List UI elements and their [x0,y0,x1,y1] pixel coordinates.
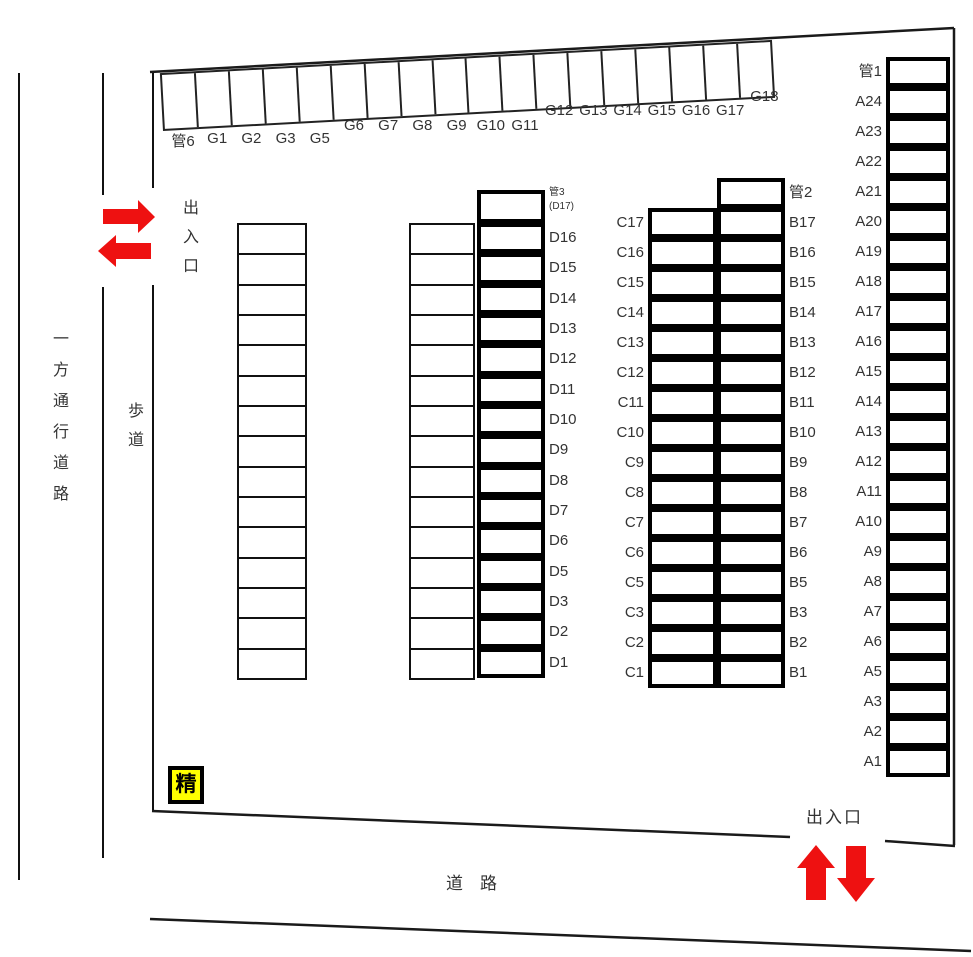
stall-label-a: A3 [818,687,882,717]
parking-stall-unlabeled [239,498,305,528]
parking-stall-c [648,628,717,658]
stall-label-g: G10 [473,117,509,135]
parking-stall-unlabeled [239,619,305,649]
parking-stall-a [886,537,950,567]
left-entrance-arrow-in-icon [103,200,155,233]
lot-left-boundary-lower [152,285,154,812]
stall-label-c: C12 [580,358,644,388]
parking-stall-b [717,328,785,358]
stall-label-g: G12 [541,102,577,120]
stall-label-c: C13 [580,328,644,358]
stall-label-a: A12 [818,447,882,477]
parking-stall-d [477,375,545,405]
stall-label-g: G7 [370,117,406,135]
parking-stall-d [477,223,545,253]
parking-stall-d [477,344,545,375]
stall-label-g: G2 [233,130,269,148]
parking-stall-c [648,268,717,298]
parking-stall-a [886,657,950,687]
stall-label-c: C8 [580,478,644,508]
parking-stall-b [717,418,785,448]
unlabeled-column-left [237,223,307,680]
stall-label-a: A18 [818,267,882,297]
stall-label-a: A5 [818,657,882,687]
parking-stall-c [648,508,717,538]
parking-stall-g [196,71,233,127]
parking-stall-d [477,648,545,678]
parking-stall-a [886,447,950,477]
parking-stall-a [886,87,950,117]
stall-label-c: C7 [580,508,644,538]
stall-label-a: A10 [818,507,882,537]
sidewalk-line-upper [102,73,104,195]
parking-stall-c [648,448,717,478]
stall-label-c: C14 [580,298,644,328]
parking-stall-a [886,147,950,177]
stall-label-d-top-sub: (D17) [549,200,574,213]
stall-label-a: A20 [818,207,882,237]
parking-stall-unlabeled [239,377,305,407]
parking-stall-d [477,617,545,648]
lot-bottom-boundary-right [885,841,955,846]
parking-stall-unlabeled [411,650,473,678]
parking-stall-g [467,57,504,113]
parking-stall-unlabeled [239,528,305,558]
stall-label-a: A14 [818,387,882,417]
parking-stall-d [477,405,545,435]
parking-stall-c [648,538,717,568]
stall-label-c: C10 [580,418,644,448]
stall-label-g: G17 [712,102,748,120]
bottom-entrance-arrow-down-icon [837,846,875,902]
parking-stall-a [886,567,950,597]
parking-stall-a [886,207,950,237]
stall-label-g: G14 [610,102,646,120]
parking-lot-map: 一方通行道路 歩道 出入口 管6G1G2G3G5G6G7G8G9G10G11G1… [0,0,973,957]
stall-label-g: G16 [678,102,714,120]
parking-stall-a [886,357,950,387]
parking-stall-b [717,568,785,598]
parking-stall-a [886,387,950,417]
parking-stall-g [501,55,538,111]
parking-stall-a [886,297,950,327]
parking-stall-b [717,508,785,538]
parking-stall-a [886,627,950,657]
parking-stall-d [477,284,545,314]
lot-bottom-boundary-left [152,811,790,837]
parking-stall-unlabeled [411,559,473,589]
parking-stall-a [886,687,950,717]
stall-label-a: A17 [818,297,882,327]
bottom-entrance-label: 出入口 [806,803,863,828]
stall-label-a: A6 [818,627,882,657]
parking-stall-unlabeled [411,225,473,255]
parking-stall-g [704,44,741,100]
parking-stall-unlabeled [239,407,305,437]
parking-stall-a [886,177,950,207]
parking-stall-g [569,51,606,107]
stall-label-g: G11 [507,117,543,135]
parking-stall-c [648,238,717,268]
stall-label-g: 管6 [165,130,201,148]
road-left-line [18,73,20,880]
parking-stall-b [717,658,785,688]
parking-stall-b [717,598,785,628]
stall-label-a: A24 [818,87,882,117]
stall-label-c: C3 [580,598,644,628]
stall-label-c: C6 [580,538,644,568]
left-entrance-arrow-out-icon [98,235,151,267]
parking-stall-g [399,60,436,116]
parking-stall-d [477,435,545,466]
parking-stall-unlabeled [411,407,473,437]
parking-stall-c [648,418,717,448]
parking-stall-g [331,64,368,120]
parking-stall-unlabeled [411,316,473,346]
parking-stall-unlabeled [411,528,473,558]
parking-stall-c [648,358,717,388]
stall-label-c: C16 [580,238,644,268]
road-label: 道 路 [446,869,497,894]
bottom-entrance-arrow-up-icon [797,845,835,900]
stall-label-g: G6 [336,117,372,135]
road-bottom-line [150,919,971,951]
parking-stall-unlabeled [411,468,473,498]
lot-left-boundary-upper [152,72,154,188]
parking-stall-unlabeled [411,589,473,619]
parking-stall-unlabeled [411,346,473,376]
parking-stall-g [264,68,301,124]
stall-label-a: A21 [818,177,882,207]
parking-stall-a [886,417,950,447]
parking-stall-d [477,314,545,344]
stall-label-a: A11 [818,477,882,507]
stall-label-a: A22 [818,147,882,177]
stall-label-c: C9 [580,448,644,478]
parking-stall-c [648,388,717,418]
left-entrance-label: 出入口 [176,199,200,286]
parking-stall-d [477,587,545,617]
stall-label-a: 管1 [818,57,882,87]
stall-label-g: G18 [746,88,782,106]
parking-stall-a [886,507,950,537]
parking-stall-unlabeled [411,255,473,285]
parking-stall-a [886,117,950,147]
stall-label-a: A13 [818,417,882,447]
parking-stall-a [886,267,950,297]
parking-stall-b [717,298,785,328]
unlabeled-column-mid [409,223,475,680]
parking-stall-d [477,526,545,557]
stall-label-a: A8 [818,567,882,597]
stall-label-c: C17 [580,208,644,238]
parking-stall-g [433,58,470,114]
stall-label-d-top: 管3 [549,186,565,199]
parking-stall-b [717,628,785,658]
parking-stall-b [717,388,785,418]
sidewalk-label: 歩道 [121,402,145,460]
stall-label-g: G9 [439,117,475,135]
parking-stall-g [670,46,707,102]
parking-stall-a [886,327,950,357]
one-way-road-label: 一方通行道路 [46,330,70,516]
parking-stall-c [648,598,717,628]
parking-stall-unlabeled [411,498,473,528]
parking-stall-d-top [477,190,545,223]
parking-stall-a [886,237,950,267]
stall-label-g: G1 [199,130,235,148]
parking-stall-a [886,57,950,87]
parking-stall-b [717,208,785,238]
parking-stall-c [648,658,717,688]
stall-label-a: A23 [818,117,882,147]
parking-stall-unlabeled [411,437,473,467]
parking-stall-c [648,478,717,508]
parking-stall-unlabeled [239,437,305,467]
stall-label-a: A2 [818,717,882,747]
parking-stall-c [648,298,717,328]
stall-label-a: A15 [818,357,882,387]
stall-label-g: G5 [302,130,338,148]
parking-stall-b [717,478,785,508]
parking-stall-unlabeled [239,286,305,316]
parking-stall-unlabeled [239,468,305,498]
stall-label-c: C11 [580,388,644,418]
parking-stall-b [717,358,785,388]
stall-label-a: A16 [818,327,882,357]
parking-stall-d [477,557,545,587]
parking-stall-c [648,208,717,238]
stall-label-c: C5 [580,568,644,598]
parking-stall-unlabeled [411,286,473,316]
parking-stall-b [717,238,785,268]
parking-stall-g [230,69,267,125]
parking-stall-unlabeled [411,377,473,407]
parking-stall-c [648,328,717,358]
parking-stall-unlabeled [239,225,305,255]
parking-stall-c [648,568,717,598]
stall-label-a: A1 [818,747,882,777]
parking-stall-unlabeled [239,589,305,619]
parking-stall-d [477,466,545,496]
parking-stall-unlabeled [239,255,305,285]
parking-stall-a [886,597,950,627]
sidewalk-line-lower [102,287,104,858]
stall-label-g: G13 [575,102,611,120]
parking-stall-b [717,268,785,298]
parking-stall-g [162,73,199,129]
parking-stall-g [636,47,673,103]
parking-stall-a [886,477,950,507]
parking-stall-g [603,49,640,105]
parking-stall-d [477,253,545,284]
parking-stall-a [886,747,950,777]
stall-label-a: A19 [818,237,882,267]
stall-label-a: A7 [818,597,882,627]
stall-label-g: G15 [644,102,680,120]
parking-stall-g [298,66,335,122]
stall-label-c: C1 [580,658,644,688]
stall-label-c: C2 [580,628,644,658]
parking-stall-g [365,62,402,118]
parking-stall-unlabeled [239,316,305,346]
parking-stall-d [477,496,545,526]
parking-stall-b [717,538,785,568]
parking-stall-g [535,53,572,109]
parking-stall-unlabeled [239,346,305,376]
parking-stall-a [886,717,950,747]
parking-stall-unlabeled [411,619,473,649]
stall-label-g: G8 [404,117,440,135]
parking-stall-b [717,448,785,478]
status-badge: 精 [168,766,204,804]
stall-label-c: C15 [580,268,644,298]
parking-stall-b-top [717,178,785,208]
parking-stall-unlabeled [239,559,305,589]
parking-stall-unlabeled [239,650,305,678]
stall-label-g: G3 [268,130,304,148]
stall-label-a: A9 [818,537,882,567]
